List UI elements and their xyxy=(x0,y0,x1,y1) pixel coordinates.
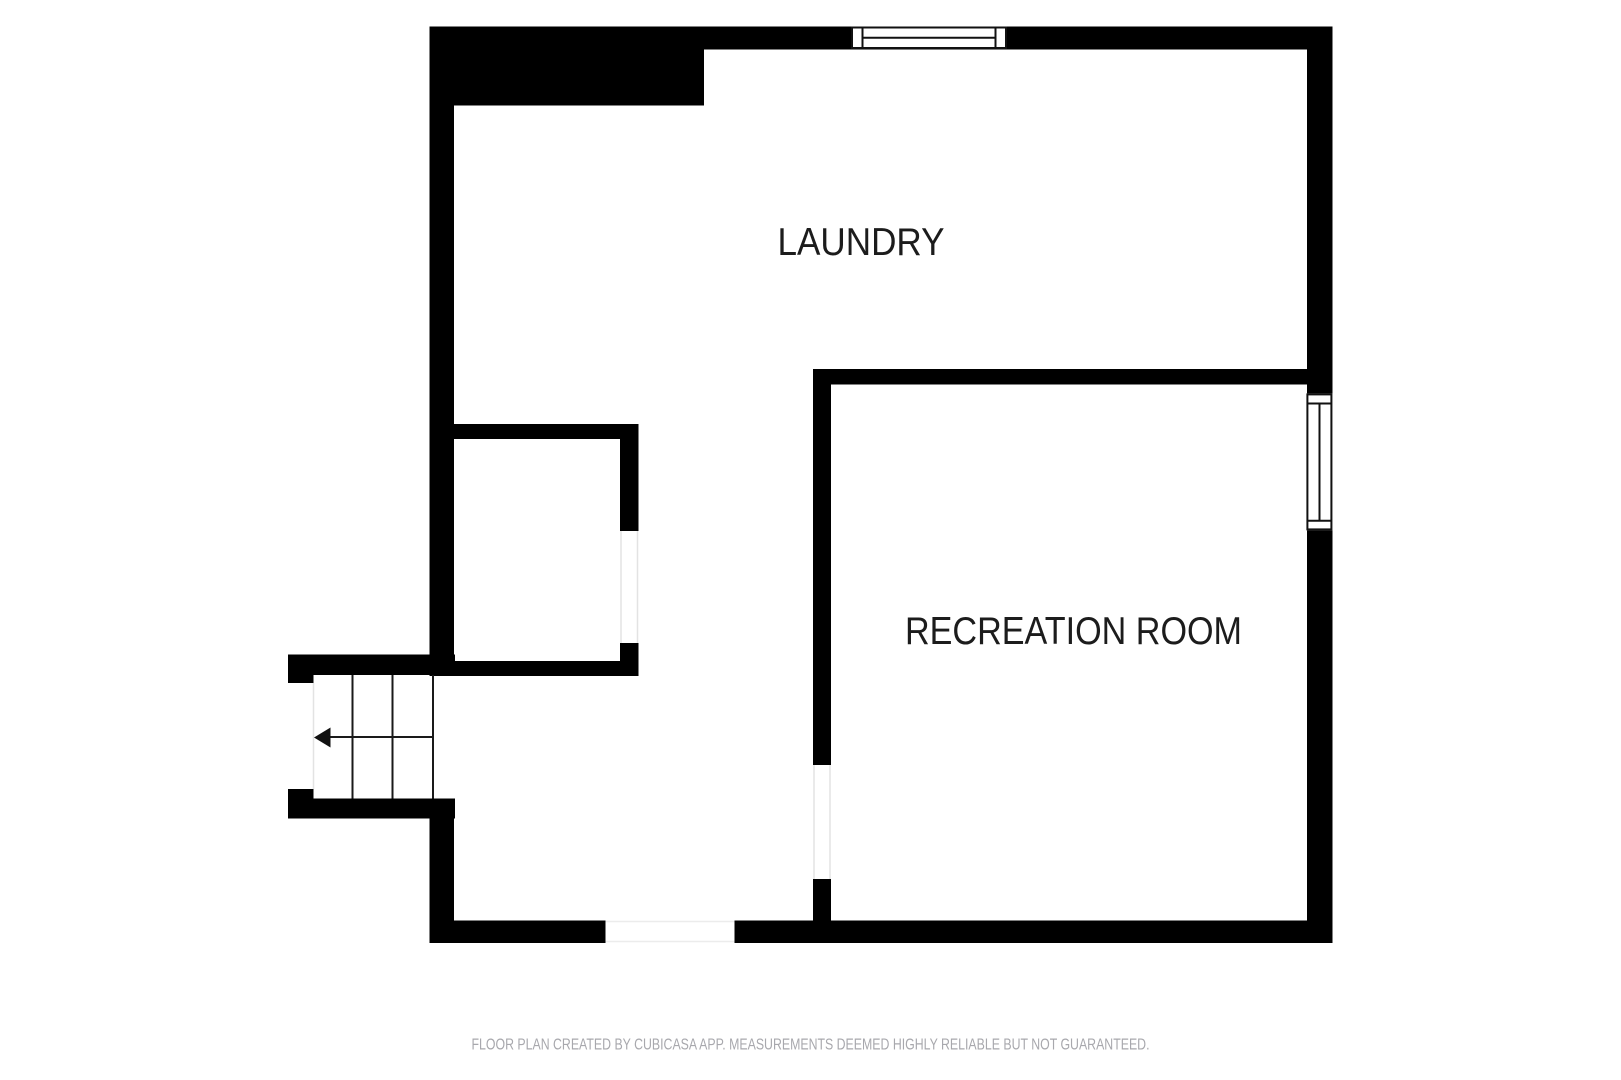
svg-text:LAUNDRY: LAUNDRY xyxy=(778,221,945,264)
svg-text:FLOOR PLAN CREATED BY CUBICASA: FLOOR PLAN CREATED BY CUBICASA APP. MEAS… xyxy=(472,1037,1150,1054)
svg-text:RECREATION ROOM: RECREATION ROOM xyxy=(905,610,1242,653)
